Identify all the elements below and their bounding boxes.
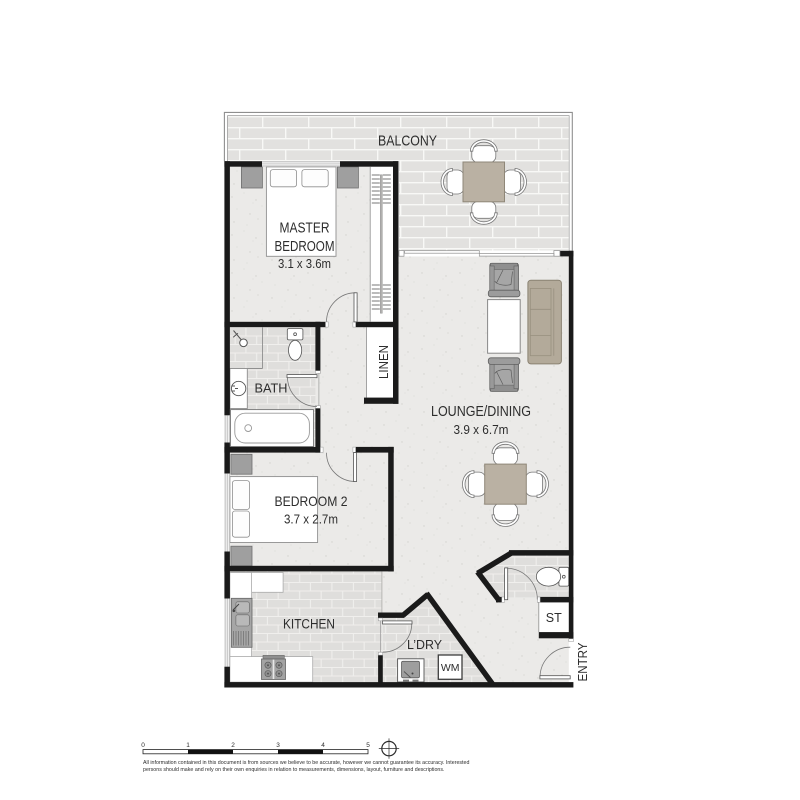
svg-text:5: 5 [366, 742, 370, 749]
svg-text:4: 4 [321, 742, 325, 749]
svg-text:persons should make and rely o: persons should make and rely on their ow… [143, 767, 445, 773]
svg-text:3.1 x 3.6m: 3.1 x 3.6m [278, 256, 331, 271]
svg-text:BEDROOM 2: BEDROOM 2 [275, 493, 348, 509]
svg-text:BALCONY: BALCONY [378, 134, 437, 150]
svg-text:0: 0 [141, 742, 145, 749]
svg-text:3: 3 [276, 742, 280, 749]
svg-text:ST: ST [546, 611, 562, 625]
svg-text:3.9 x 6.7m: 3.9 x 6.7m [454, 422, 509, 437]
svg-text:BEDROOM: BEDROOM [275, 239, 335, 255]
svg-text:All information contained in t: All information contained in this docume… [143, 760, 469, 766]
svg-text:ENTRY: ENTRY [575, 642, 590, 681]
svg-text:BATH: BATH [255, 382, 288, 396]
svg-text:L’DRY: L’DRY [407, 637, 442, 652]
svg-text:3.7 x 2.7m: 3.7 x 2.7m [284, 512, 338, 527]
svg-text:LOUNGE/DINING: LOUNGE/DINING [431, 404, 531, 420]
svg-text:LINEN: LINEN [377, 345, 391, 379]
svg-text:1: 1 [186, 742, 190, 749]
svg-text:2: 2 [231, 742, 235, 749]
svg-text:MASTER: MASTER [280, 221, 330, 237]
svg-text:WM: WM [441, 662, 460, 674]
svg-text:KITCHEN: KITCHEN [283, 617, 335, 632]
